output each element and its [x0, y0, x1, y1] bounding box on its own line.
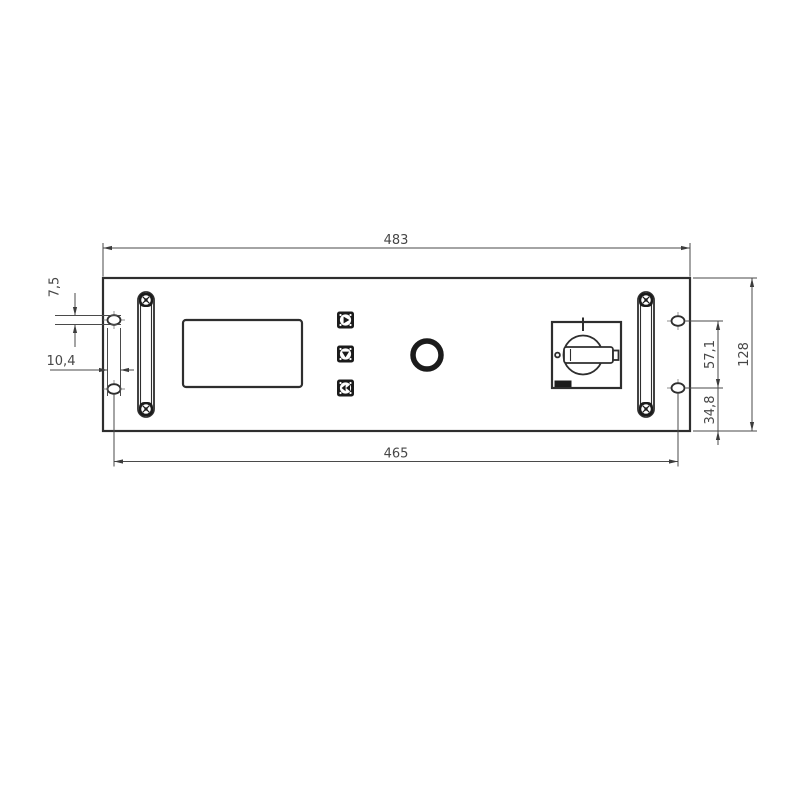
technical-drawing-canvas: 483 465 128 57,1 34,8 [0, 0, 800, 800]
button-rewind [337, 380, 354, 397]
dimension-label: 483 [384, 233, 409, 248]
left-rack-handle [138, 292, 154, 417]
screw-icon [139, 293, 153, 307]
right-rack-handle [638, 292, 654, 417]
switch-label-block [555, 381, 572, 388]
dimension-overall-width: 483 [103, 233, 690, 277]
rotary-switch [552, 318, 621, 389]
switch-handle [564, 347, 619, 363]
screw-icon [639, 402, 653, 416]
dimension-label: 34,8 [703, 396, 718, 425]
button-play [337, 312, 354, 329]
button-down [337, 346, 354, 363]
screw-icon [139, 402, 153, 416]
dimension-hole-spacing: 57,1 [686, 321, 723, 388]
dimension-label: 465 [384, 447, 409, 462]
screw-icon [639, 293, 653, 307]
display-window [183, 320, 302, 387]
dimension-label: 10,4 [47, 354, 76, 369]
dimension-label: 7,5 [48, 277, 63, 298]
dimension-label: 57,1 [703, 340, 718, 369]
switch-screw-icon [555, 353, 560, 358]
dimension-slot-width: 10,4 [47, 328, 134, 396]
front-panel-drawing: 483 465 128 57,1 34,8 [0, 0, 800, 800]
dimension-hole-to-bottom: 34,8 [703, 388, 720, 445]
dimension-label: 128 [737, 342, 752, 367]
